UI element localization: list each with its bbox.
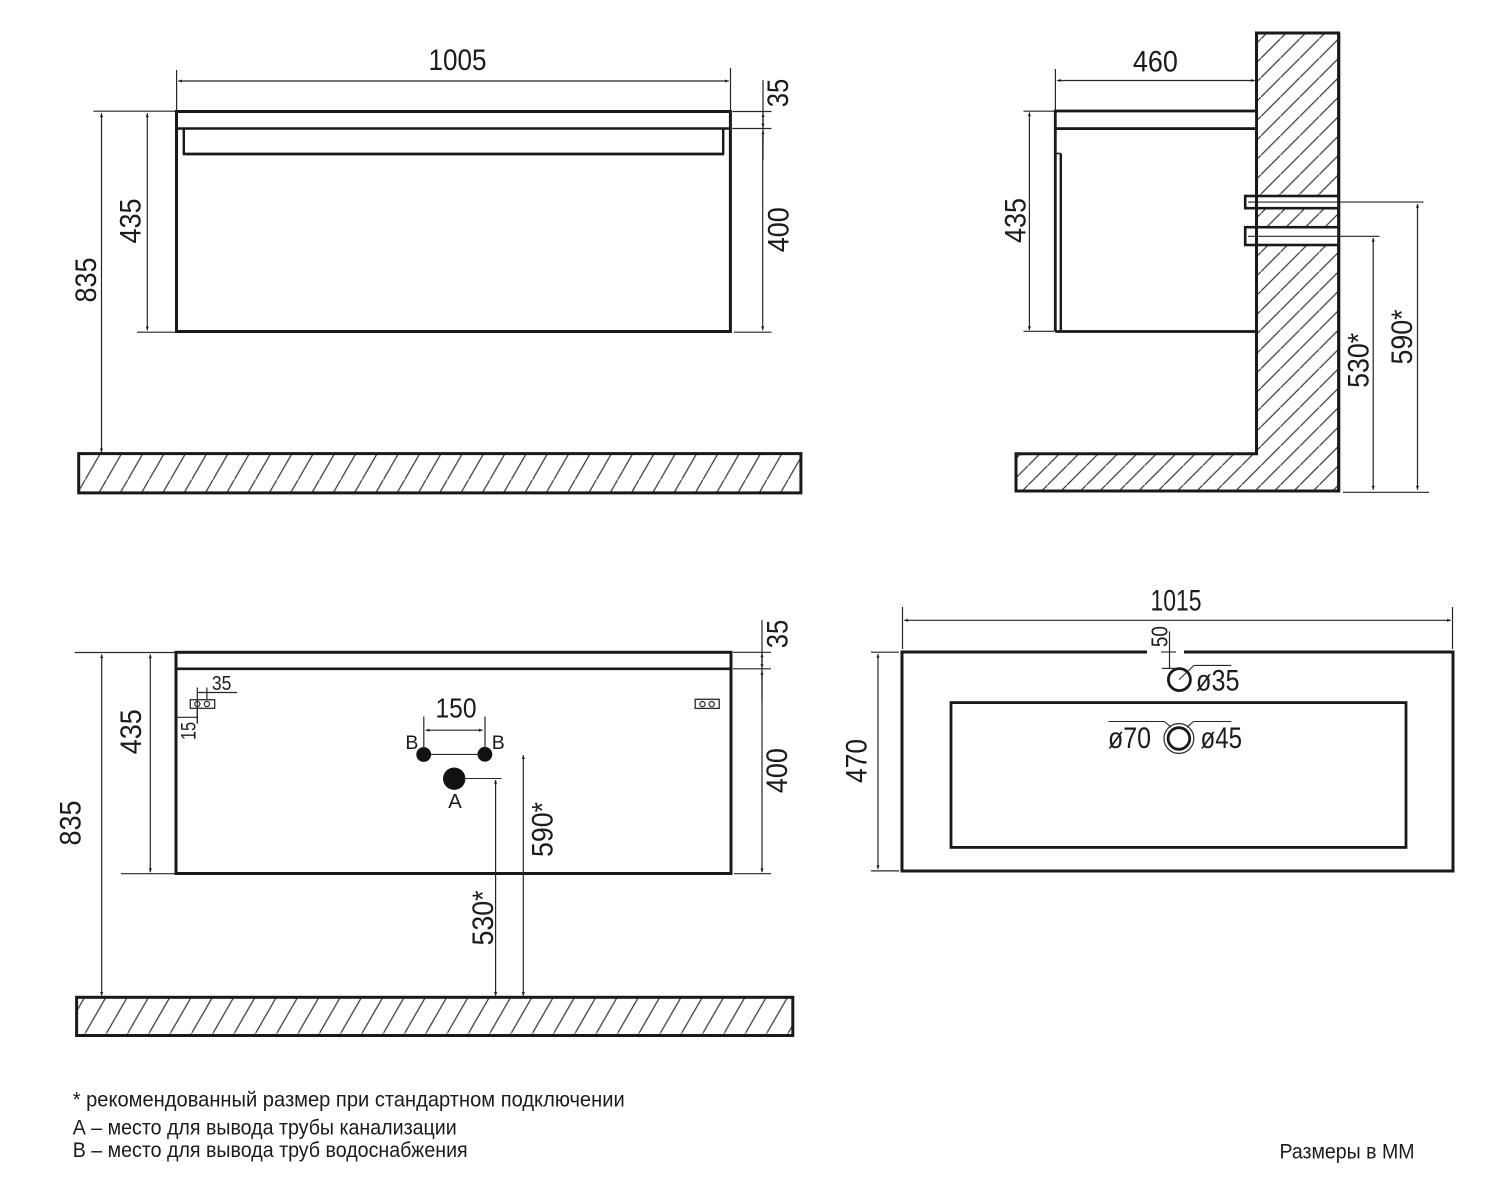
svg-text:400: 400 xyxy=(761,748,794,793)
svg-text:590*: 590* xyxy=(526,802,559,857)
svg-text:1015: 1015 xyxy=(1151,585,1202,618)
svg-text:530*: 530* xyxy=(1342,333,1375,388)
svg-text:50: 50 xyxy=(1147,626,1173,647)
svg-text:470: 470 xyxy=(841,739,874,783)
svg-text:435: 435 xyxy=(1000,198,1033,243)
svg-text:* рекомендованный размер при с: * рекомендованный размер при стандартном… xyxy=(73,1088,625,1112)
svg-text:B: B xyxy=(405,732,418,754)
svg-text:435: 435 xyxy=(115,709,148,754)
svg-text:835: 835 xyxy=(55,801,88,846)
svg-text:530*: 530* xyxy=(467,890,500,945)
svg-text:ø35: ø35 xyxy=(1196,665,1240,698)
svg-text:В – место для вывода труб водо: В – место для вывода труб водоснабжения xyxy=(73,1138,468,1162)
svg-text:15: 15 xyxy=(178,722,201,740)
svg-text:400: 400 xyxy=(762,207,795,252)
svg-text:А – место для вывода трубы кан: А – место для вывода трубы канализации xyxy=(73,1116,457,1140)
svg-text:A: A xyxy=(448,790,462,813)
svg-text:Размеры в ММ: Размеры в ММ xyxy=(1280,1140,1415,1164)
svg-text:ø70: ø70 xyxy=(1108,722,1151,755)
svg-text:B: B xyxy=(492,732,505,754)
svg-text:35: 35 xyxy=(212,673,232,695)
svg-text:435: 435 xyxy=(114,199,147,244)
svg-text:ø45: ø45 xyxy=(1201,722,1243,755)
svg-text:460: 460 xyxy=(1133,46,1178,79)
svg-text:150: 150 xyxy=(436,693,477,724)
svg-text:590*: 590* xyxy=(1386,309,1419,364)
svg-text:35: 35 xyxy=(762,79,795,108)
svg-text:1005: 1005 xyxy=(429,44,487,77)
svg-text:835: 835 xyxy=(70,258,103,303)
svg-text:35: 35 xyxy=(761,620,794,649)
